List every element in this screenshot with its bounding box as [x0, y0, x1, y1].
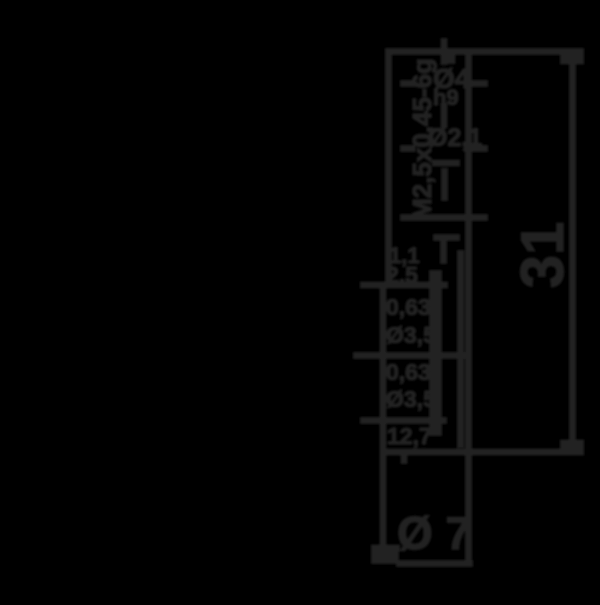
svg-text:12,7: 12,7 — [387, 423, 432, 449]
svg-text:0,63: 0,63 — [386, 294, 431, 320]
svg-text:0,63: 0,63 — [386, 359, 431, 385]
svg-text:Ø3,5: Ø3,5 — [386, 322, 436, 348]
svg-text:2,5: 2,5 — [386, 262, 418, 288]
svg-text:Ø 7: Ø 7 — [397, 507, 471, 559]
svg-text:31: 31 — [509, 222, 576, 289]
svg-text:Ø3,5: Ø3,5 — [386, 386, 436, 412]
svg-text:M2,5x0,45-6g: M2,5x0,45-6g — [407, 58, 437, 220]
